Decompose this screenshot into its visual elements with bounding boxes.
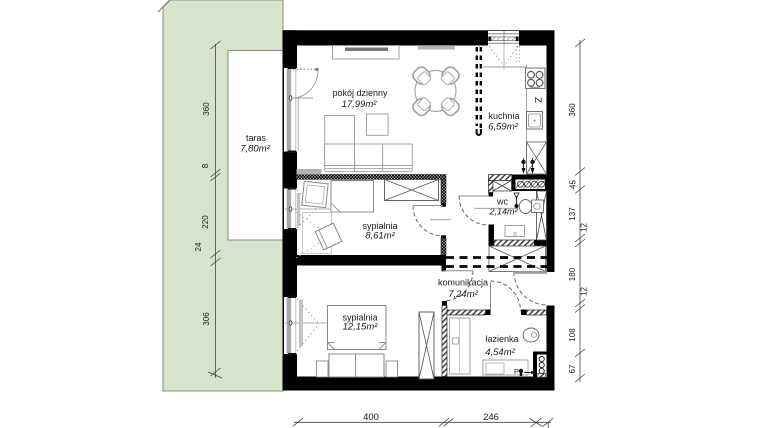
svg-text:7,24m²: 7,24m² xyxy=(448,289,478,300)
svg-text:220: 220 xyxy=(201,215,210,229)
svg-text:6,59m²: 6,59m² xyxy=(488,122,518,133)
svg-text:12,15m²: 12,15m² xyxy=(343,322,379,333)
svg-text:12: 12 xyxy=(580,223,589,232)
svg-text:pokój dzienny: pokój dzienny xyxy=(332,88,388,98)
svg-text:łazienka: łazienka xyxy=(485,334,518,344)
svg-text:108: 108 xyxy=(568,328,577,342)
svg-text:360: 360 xyxy=(202,102,211,116)
svg-text:taras: taras xyxy=(246,133,267,143)
svg-text:wc: wc xyxy=(496,197,508,207)
svg-text:7,80m²: 7,80m² xyxy=(240,144,270,155)
svg-text:67: 67 xyxy=(568,364,577,373)
svg-text:komunikacja: komunikacja xyxy=(438,278,488,288)
svg-text:180: 180 xyxy=(568,267,577,281)
svg-text:360: 360 xyxy=(568,103,577,117)
svg-text:306: 306 xyxy=(202,312,211,326)
svg-text:8,61m²: 8,61m² xyxy=(365,231,395,242)
svg-text:17,99m²: 17,99m² xyxy=(342,99,378,110)
svg-text:24: 24 xyxy=(194,242,203,251)
svg-text:246: 246 xyxy=(483,412,499,423)
svg-text:sypialnia: sypialnia xyxy=(362,221,397,231)
svg-text:kuchnia: kuchnia xyxy=(488,111,519,121)
svg-text:P: P xyxy=(514,367,519,376)
svg-text:8: 8 xyxy=(201,163,210,168)
svg-text:4,54m²: 4,54m² xyxy=(485,347,515,358)
svg-text:137: 137 xyxy=(568,207,577,221)
svg-text:45: 45 xyxy=(569,180,578,189)
svg-text:400: 400 xyxy=(363,412,379,423)
svg-text:Z: Z xyxy=(532,97,543,103)
svg-text:12: 12 xyxy=(580,287,589,296)
